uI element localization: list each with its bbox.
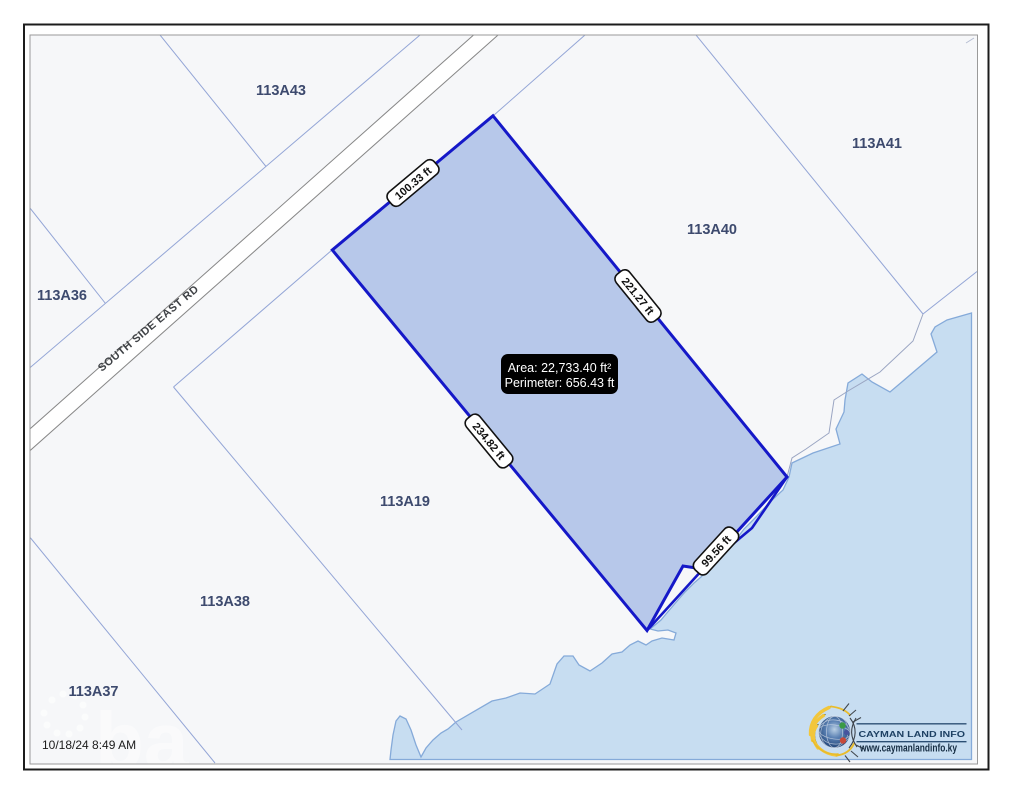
svg-text:113A43: 113A43 [256, 83, 306, 99]
svg-text:113A36: 113A36 [37, 288, 87, 304]
svg-text:113A19: 113A19 [380, 494, 430, 510]
svg-text:www.caymanlandinfo.ky: www.caymanlandinfo.ky [859, 742, 957, 754]
svg-text:113A40: 113A40 [687, 222, 737, 238]
svg-text:Area: 22,733.40 ft²: Area: 22,733.40 ft² [508, 361, 612, 375]
svg-text:113A38: 113A38 [200, 594, 250, 610]
svg-text:113A41: 113A41 [852, 136, 902, 152]
svg-text:10/18/24 8:49 AM: 10/18/24 8:49 AM [42, 738, 136, 752]
svg-text:113A37: 113A37 [69, 684, 119, 700]
svg-text:CAYMAN LAND INFO: CAYMAN LAND INFO [859, 729, 966, 739]
svg-text:Perimeter: 656.43 ft: Perimeter: 656.43 ft [505, 376, 615, 390]
